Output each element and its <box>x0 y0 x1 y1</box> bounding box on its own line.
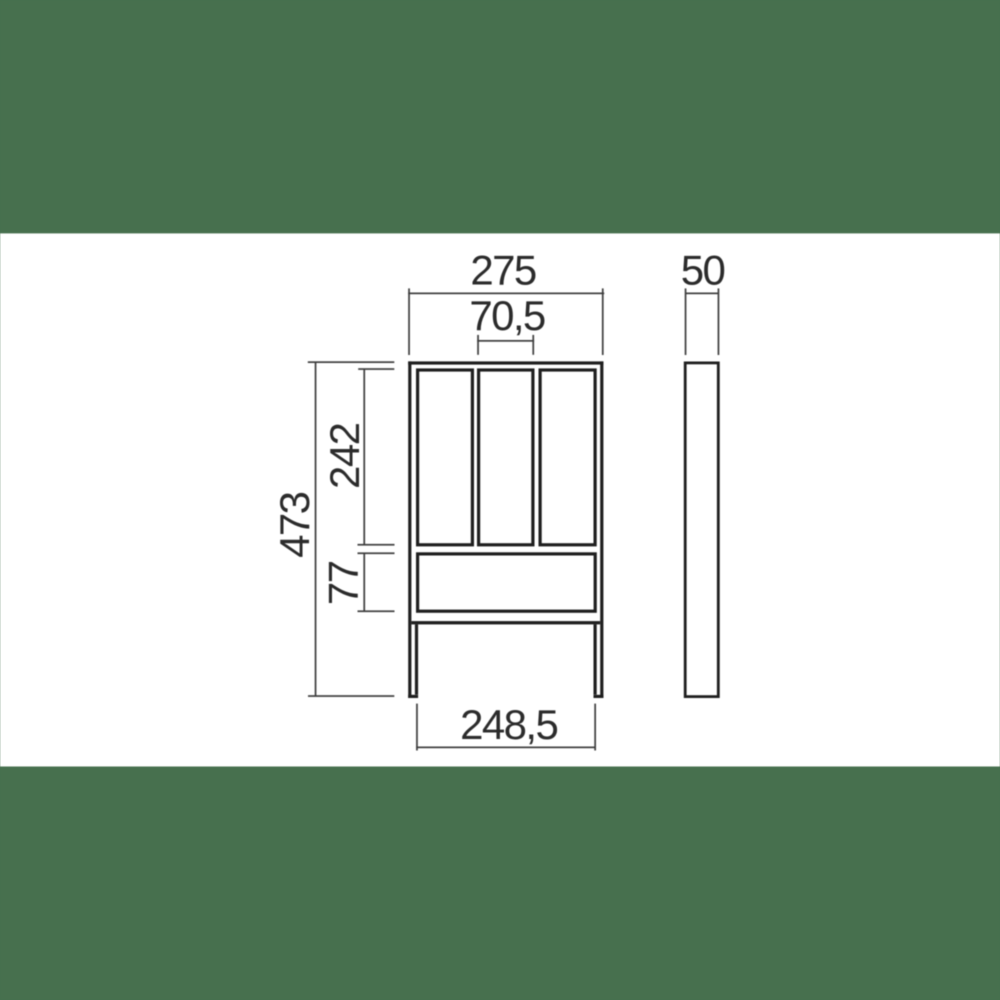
svg-text:473: 473 <box>271 492 318 558</box>
svg-text:70,5: 70,5 <box>469 292 545 339</box>
svg-text:77: 77 <box>320 561 367 605</box>
svg-text:50: 50 <box>681 246 725 293</box>
svg-text:275: 275 <box>470 246 536 293</box>
svg-text:242: 242 <box>321 423 368 489</box>
svg-text:248,5: 248,5 <box>460 701 557 748</box>
